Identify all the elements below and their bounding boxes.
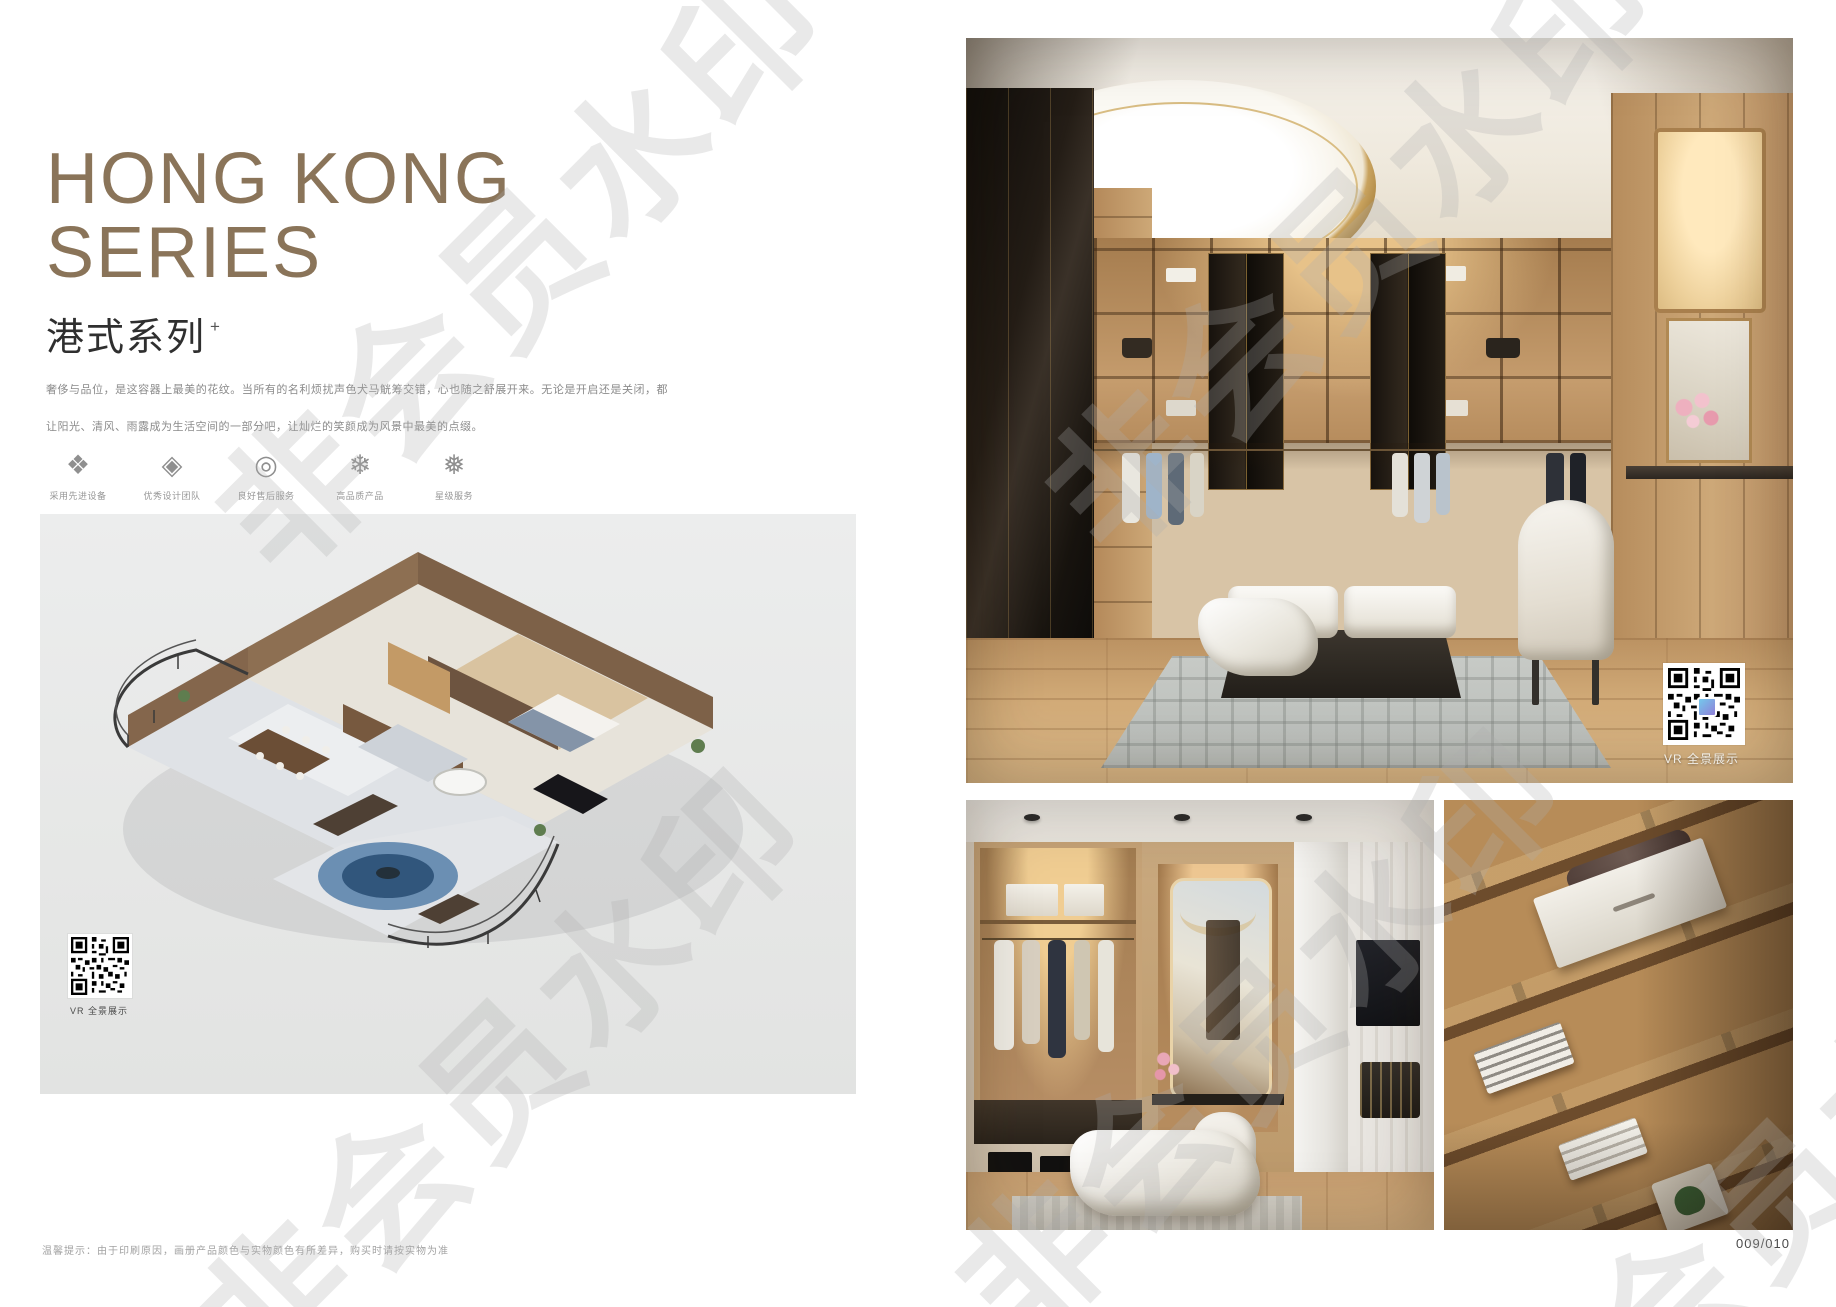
feature-label: 采用先进设备 xyxy=(46,489,110,502)
design-team-icon: ◈ xyxy=(140,447,204,483)
floorplan-qr-code xyxy=(68,934,132,998)
series-subtitle-mark: + xyxy=(210,317,222,336)
photo-walkin-closet: VR 全景展示 xyxy=(966,38,1793,783)
footer-note: 温馨提示：由于印刷原因，画册产品颜色与实物颜色有所差异，购买时请按实物为准 xyxy=(42,1242,449,1257)
feature-item-design-team: ◈ 优秀设计团队 xyxy=(140,447,204,502)
series-title: HONG KONG SERIES xyxy=(46,142,512,290)
photo-dressing-area xyxy=(966,800,1434,1230)
photo-vignette xyxy=(966,800,1434,1230)
catalog-page: HONG KONG SERIES 港式系列+ 奢侈与品位，是这容器上最美的花纹。… xyxy=(0,0,1836,1307)
floorplan-illustration xyxy=(88,524,808,1044)
series-subtitle: 港式系列+ xyxy=(46,306,222,361)
advanced-equipment-icon: ❖ xyxy=(46,447,110,483)
series-title-line2: SERIES xyxy=(46,216,512,290)
after-sales-icon: ◎ xyxy=(234,447,298,483)
feature-label: 星级服务 xyxy=(422,489,486,502)
floorplan-qr-label: VR 全景展示 xyxy=(64,1004,134,1017)
quality-product-icon: ❄ xyxy=(328,447,392,483)
feature-item-quality: ❄ 高品质产品 xyxy=(328,447,392,502)
feature-label: 优秀设计团队 xyxy=(140,489,204,502)
feature-item-star-service: ❅ 星级服务 xyxy=(422,447,486,502)
floorplan-panel: VR 全景展示 xyxy=(40,514,856,1094)
star-service-icon: ❅ xyxy=(422,447,486,483)
series-title-line1: HONG KONG xyxy=(46,142,512,216)
vr-qr-label: VR 全景展示 xyxy=(1664,750,1739,767)
page-number: 009/010 xyxy=(1736,1236,1790,1251)
feature-label: 良好售后服务 xyxy=(234,489,298,502)
series-subtitle-text: 港式系列 xyxy=(46,317,206,359)
qr-logo-cube-icon xyxy=(1697,697,1717,717)
photo-shelf-closeup xyxy=(1444,800,1793,1230)
series-description: 奢侈与品位，是这容器上最美的花纹。当所有的名利烦扰声色犬马觥筹交错，心也随之舒展… xyxy=(46,372,668,446)
feature-label: 高品质产品 xyxy=(328,489,392,502)
feature-item-equipment: ❖ 采用先进设备 xyxy=(46,447,110,502)
feature-item-after-sales: ◎ 良好售后服务 xyxy=(234,447,298,502)
photo-vignette xyxy=(1444,800,1793,1230)
feature-list: ❖ 采用先进设备 ◈ 优秀设计团队 ◎ 良好售后服务 ❄ 高品质产品 ❅ 星级服… xyxy=(46,447,486,502)
